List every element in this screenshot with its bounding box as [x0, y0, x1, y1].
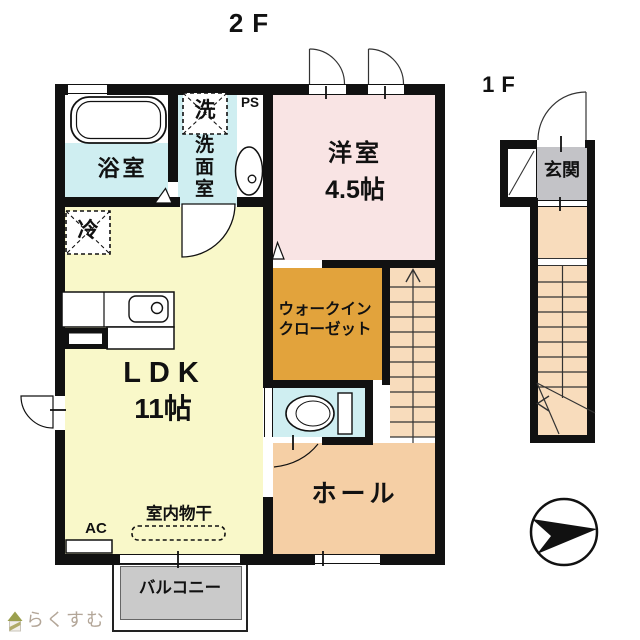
floor2-title: 2F: [193, 9, 313, 38]
stairs-1f-landing: [538, 207, 587, 258]
bathtub: [71, 97, 166, 143]
western-room-size: 4.5帖: [295, 177, 415, 205]
wall-segment: [530, 198, 538, 443]
wall-segment: [55, 554, 120, 565]
wic-label-line2: クローゼット: [270, 321, 380, 338]
washbasin-faucet: [248, 175, 256, 183]
door-arc-ldk-exterior: [21, 396, 53, 428]
balcony-label: バルコニー: [122, 579, 238, 597]
indoor-drying-label: 室内物干: [133, 505, 225, 523]
door-arc-west-window-2: [369, 49, 404, 84]
entrance-step: [537, 200, 587, 207]
laundry-box-label: 洗: [183, 99, 227, 122]
hall-label: ホール: [300, 481, 410, 509]
shoe-cabinet: [507, 148, 537, 198]
toilet-floor: [273, 388, 365, 437]
bathtub-inner: [77, 102, 161, 139]
stairs-1f-strip: [538, 258, 587, 266]
wall-segment: [587, 140, 595, 443]
wall-segment: [107, 84, 308, 95]
door-arc-west-window-1: [310, 49, 345, 84]
bathroom-label: 浴室: [75, 157, 170, 181]
washroom-label: 洗面室: [194, 135, 215, 202]
door-arc-entrance: [538, 92, 586, 140]
ac-label: AC: [76, 521, 116, 538]
stairs-2f-floor: [390, 268, 435, 437]
window-opening: [315, 554, 380, 564]
wall-segment: [263, 84, 273, 268]
thin-partition: [264, 388, 273, 437]
entrance-label: 玄関: [537, 161, 587, 181]
stairs-1f-floor: [538, 266, 587, 435]
floor1-title: 1F: [467, 73, 537, 97]
wall-segment: [240, 554, 315, 565]
door-sill: [308, 84, 347, 95]
wall-segment: [322, 437, 368, 445]
fridge-box-label: 冷: [66, 219, 110, 242]
logo-text: らくすむ: [26, 611, 106, 631]
wall-segment: [500, 140, 508, 207]
wall-segment: [55, 430, 65, 565]
wall-segment: [435, 84, 445, 565]
pipe-space-label: PS: [237, 96, 263, 111]
wall-segment: [55, 84, 65, 396]
floorplan-canvas: 2F 1F 浴室 洗 洗面室 PS 冷 洋室 4.5帖 LDK 11帖 ウォーク…: [0, 0, 640, 640]
wall-segment: [55, 197, 180, 207]
western-room-label: 洋室: [295, 141, 415, 167]
ldk-size: 11帖: [93, 394, 233, 425]
ldk-label: LDK: [95, 358, 235, 390]
wall-segment: [263, 380, 373, 388]
window-opening: [120, 554, 240, 564]
window-opening: [68, 84, 107, 94]
washbasin: [236, 147, 263, 195]
logo-house-icon: [8, 612, 23, 632]
wic-label-line1: ウォークイン: [275, 301, 375, 318]
wall-segment: [263, 497, 273, 555]
wall-segment: [382, 260, 390, 385]
wall-segment: [345, 84, 367, 95]
wall-segment: [530, 435, 595, 443]
compass-north-arrow-icon: [531, 499, 597, 565]
door-sill: [367, 84, 405, 95]
